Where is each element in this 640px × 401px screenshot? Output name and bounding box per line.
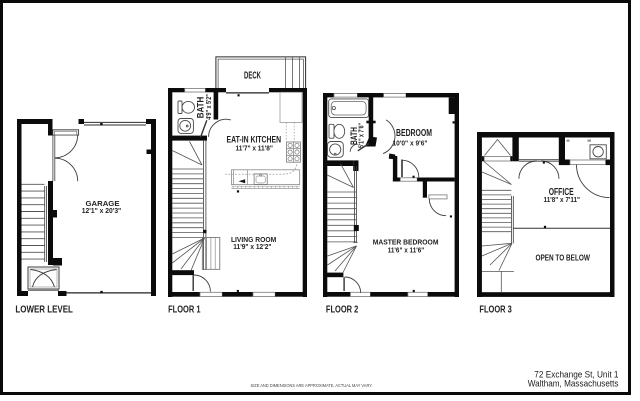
svg-text:FLOOR 3: FLOOR 3 bbox=[479, 303, 512, 315]
svg-text:OPEN TO BELOW: OPEN TO BELOW bbox=[535, 252, 590, 262]
svg-text:MASTER BEDROOM: MASTER BEDROOM bbox=[373, 238, 439, 247]
svg-text:5'1" x 7'6": 5'1" x 7'6" bbox=[357, 123, 366, 148]
svg-text:11'7" x 11'8": 11'7" x 11'8" bbox=[235, 145, 273, 152]
svg-text:10'0" x 9'6": 10'0" x 9'6" bbox=[393, 138, 428, 147]
svg-text:11'6" x 11'6": 11'6" x 11'6" bbox=[388, 248, 425, 255]
svg-text:Waltham, Massachusetts: Waltham, Massachusetts bbox=[528, 379, 619, 389]
svg-text:FLOOR 1: FLOOR 1 bbox=[168, 303, 201, 315]
svg-text:DECK: DECK bbox=[244, 70, 261, 81]
svg-text:12'1" x 20'3": 12'1" x 20'3" bbox=[82, 208, 122, 215]
svg-text:LOWER LEVEL: LOWER LEVEL bbox=[15, 303, 73, 315]
svg-text:GARAGE: GARAGE bbox=[86, 199, 120, 208]
svg-text:11'9" x 12'2": 11'9" x 12'2" bbox=[233, 244, 271, 251]
svg-text:LIVING ROOM: LIVING ROOM bbox=[231, 235, 276, 244]
svg-text:EAT-IN KITCHEN: EAT-IN KITCHEN bbox=[227, 134, 282, 144]
svg-text:FLOOR 2: FLOOR 2 bbox=[326, 303, 359, 315]
svg-text:SIZE AND DIMENSIONS ARE APPROX: SIZE AND DIMENSIONS ARE APPROXIMATE, ACT… bbox=[251, 383, 373, 388]
svg-text:4'9" x 5'2": 4'9" x 5'2" bbox=[204, 94, 213, 120]
svg-text:11'8" x 7'11": 11'8" x 7'11" bbox=[544, 197, 581, 204]
